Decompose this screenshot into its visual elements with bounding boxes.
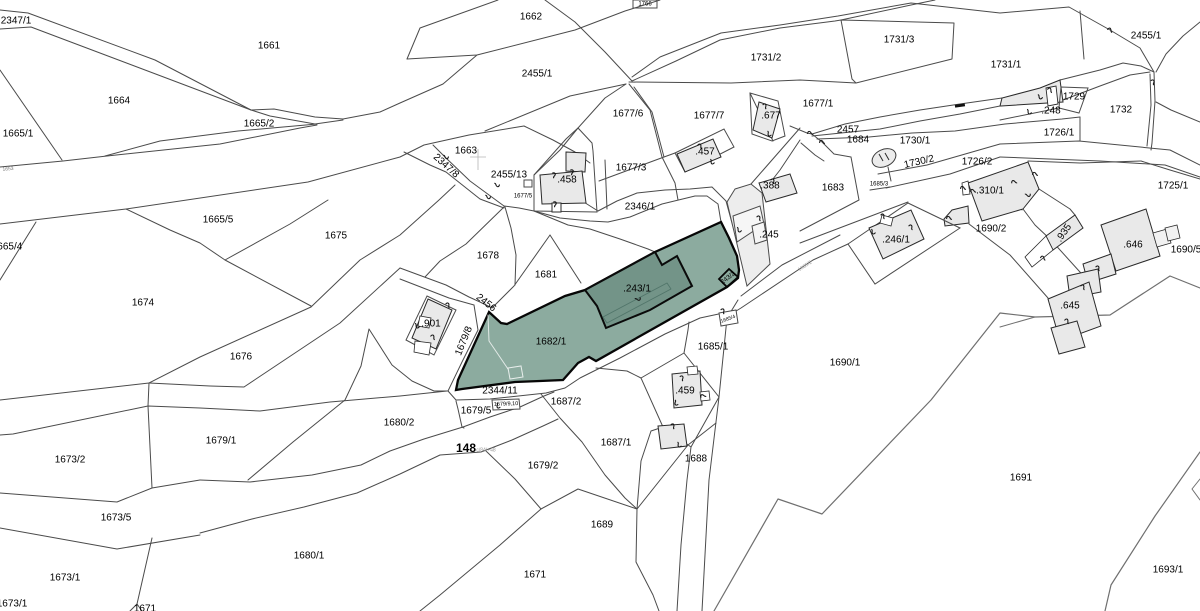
svg-text:1680/1: 1680/1 xyxy=(294,551,325,562)
svg-text:1726/1: 1726/1 xyxy=(1044,128,1075,139)
svg-text:1679/5: 1679/5 xyxy=(461,406,492,417)
svg-text:.645: .645 xyxy=(1060,301,1080,312)
svg-text:.457: .457 xyxy=(695,147,715,158)
svg-text:1731/1: 1731/1 xyxy=(991,60,1022,71)
svg-text:1674: 1674 xyxy=(132,298,155,309)
svg-text:1726/2: 1726/2 xyxy=(962,157,993,168)
svg-text:1665/1: 1665/1 xyxy=(3,129,34,140)
svg-text:2344/11: 2344/11 xyxy=(482,386,518,397)
svg-text:1677/6: 1677/6 xyxy=(613,109,644,120)
svg-text:1731/2: 1731/2 xyxy=(751,53,782,64)
svg-text:1725/1: 1725/1 xyxy=(1158,181,1189,192)
svg-text:1663: 1663 xyxy=(455,146,478,157)
svg-text:1677/5: 1677/5 xyxy=(514,194,533,200)
svg-text:1730/1: 1730/1 xyxy=(900,136,931,147)
svg-text:2455/1: 2455/1 xyxy=(1131,31,1162,42)
svg-text:.310/1: .310/1 xyxy=(976,186,1004,197)
svg-text:1680/2: 1680/2 xyxy=(384,418,415,429)
svg-text:.677: .677 xyxy=(761,111,781,122)
svg-text:1664: 1664 xyxy=(108,96,131,107)
svg-text:1681: 1681 xyxy=(535,270,558,281)
svg-text:1687/2: 1687/2 xyxy=(551,397,582,408)
svg-text:1662: 1662 xyxy=(520,12,543,23)
svg-text:.901: .901 xyxy=(421,319,441,330)
svg-text:1691: 1691 xyxy=(1010,473,1033,484)
svg-text:1729: 1729 xyxy=(1063,92,1086,103)
svg-text:1679/1: 1679/1 xyxy=(206,436,237,447)
svg-text:1731/3: 1731/3 xyxy=(884,35,915,46)
svg-text:1684: 1684 xyxy=(847,135,870,146)
svg-text:2346/1: 2346/1 xyxy=(625,202,656,213)
svg-text:1665/5: 1665/5 xyxy=(203,215,234,226)
svg-text:1673/1: 1673/1 xyxy=(0,599,28,610)
svg-text:1685/3: 1685/3 xyxy=(870,182,889,188)
svg-text:1678: 1678 xyxy=(477,251,500,262)
svg-text:1679/9,10: 1679/9,10 xyxy=(494,401,519,408)
svg-text:2455/13: 2455/13 xyxy=(491,170,528,181)
svg-text:.243/1: .243/1 xyxy=(623,284,651,295)
svg-text:1677/3: 1677/3 xyxy=(616,163,647,174)
svg-text:.458: .458 xyxy=(557,175,577,186)
svg-text:.388: .388 xyxy=(760,181,780,192)
svg-text:1693/1: 1693/1 xyxy=(1153,565,1184,576)
svg-text:1665/2: 1665/2 xyxy=(244,119,275,130)
svg-text:1677/7: 1677/7 xyxy=(694,111,725,122)
svg-text:1675: 1675 xyxy=(325,231,348,242)
svg-text:1673/1: 1673/1 xyxy=(50,573,81,584)
svg-text:1673/2: 1673/2 xyxy=(55,455,86,466)
svg-text:1683: 1683 xyxy=(822,183,845,194)
svg-text:1685/1: 1685/1 xyxy=(698,342,729,353)
svg-text:1653: 1653 xyxy=(2,166,14,173)
svg-text:.246/1: .246/1 xyxy=(882,235,910,246)
svg-text:2347/1: 2347/1 xyxy=(1,16,32,27)
svg-text:1677/1: 1677/1 xyxy=(803,99,834,110)
svg-text:1665/4: 1665/4 xyxy=(0,242,23,253)
svg-text:c/84/+48: c/84/+48 xyxy=(476,447,496,453)
svg-text:1671: 1671 xyxy=(524,570,547,581)
svg-text:2455/1: 2455/1 xyxy=(522,69,553,80)
svg-text:1673/5: 1673/5 xyxy=(101,513,132,524)
svg-text:.646: .646 xyxy=(1123,240,1143,251)
svg-text:148: 148 xyxy=(456,441,476,455)
svg-text:1676: 1676 xyxy=(230,352,253,363)
svg-text:.248: .248 xyxy=(1041,106,1061,117)
svg-text:.459: .459 xyxy=(675,386,695,397)
svg-text:1732: 1732 xyxy=(1110,105,1133,116)
svg-text:1690/1: 1690/1 xyxy=(830,358,861,369)
svg-text:.245: .245 xyxy=(759,230,779,241)
svg-text:1689: 1689 xyxy=(591,520,614,531)
svg-text:1766: 1766 xyxy=(638,2,652,8)
svg-text:1690/2: 1690/2 xyxy=(976,224,1007,235)
svg-text:1687/1: 1687/1 xyxy=(601,438,632,449)
svg-text:1688: 1688 xyxy=(685,454,708,465)
svg-text:1679/2: 1679/2 xyxy=(528,461,559,472)
svg-text:1682/1: 1682/1 xyxy=(536,337,567,348)
svg-text:1690/5: 1690/5 xyxy=(1171,245,1200,256)
svg-text:1661: 1661 xyxy=(258,41,281,52)
svg-text:1671: 1671 xyxy=(134,604,157,611)
